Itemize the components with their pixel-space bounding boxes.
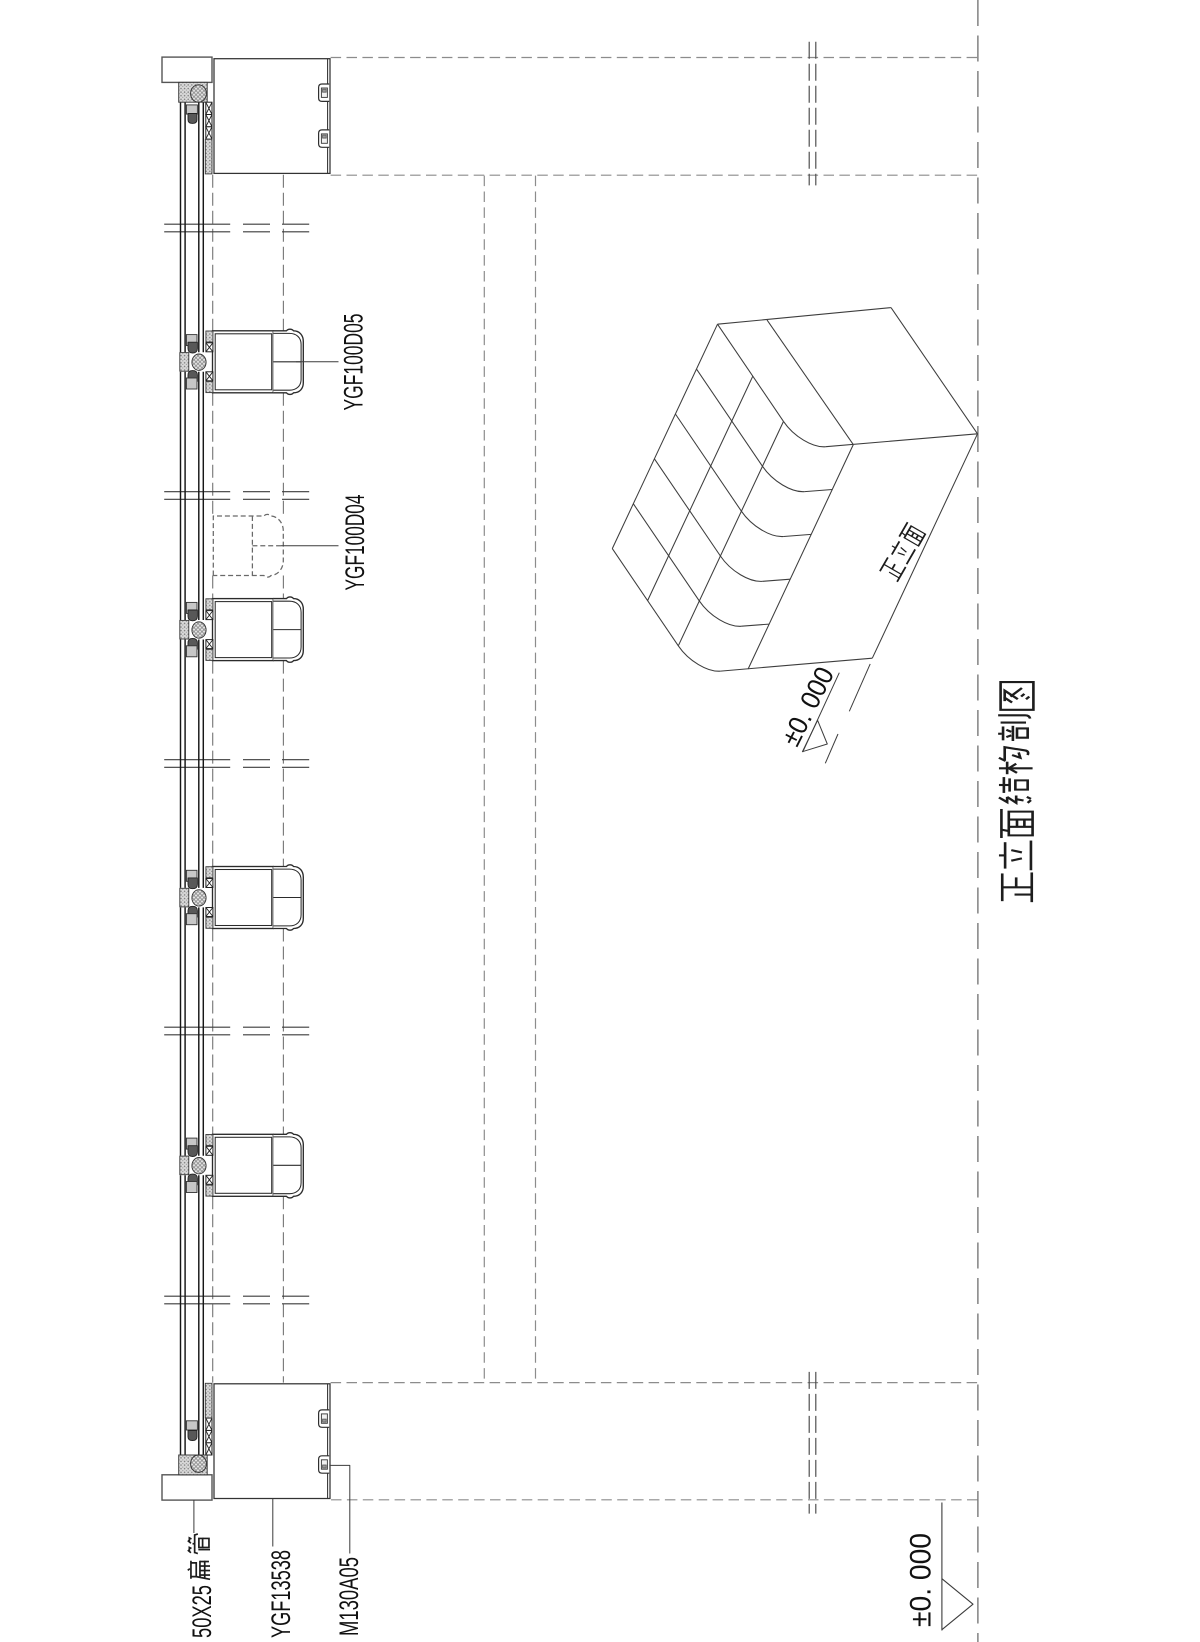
svg-text:50X25: 50X25 bbox=[187, 1585, 217, 1638]
svg-text:YGF13538: YGF13538 bbox=[266, 1550, 296, 1638]
svg-text:±0. 000: ±0. 000 bbox=[905, 1533, 938, 1627]
svg-text:YGF100D05: YGF100D05 bbox=[339, 314, 369, 411]
svg-text:YGF100D04: YGF100D04 bbox=[340, 495, 370, 591]
svg-text:M130A05: M130A05 bbox=[334, 1557, 364, 1636]
